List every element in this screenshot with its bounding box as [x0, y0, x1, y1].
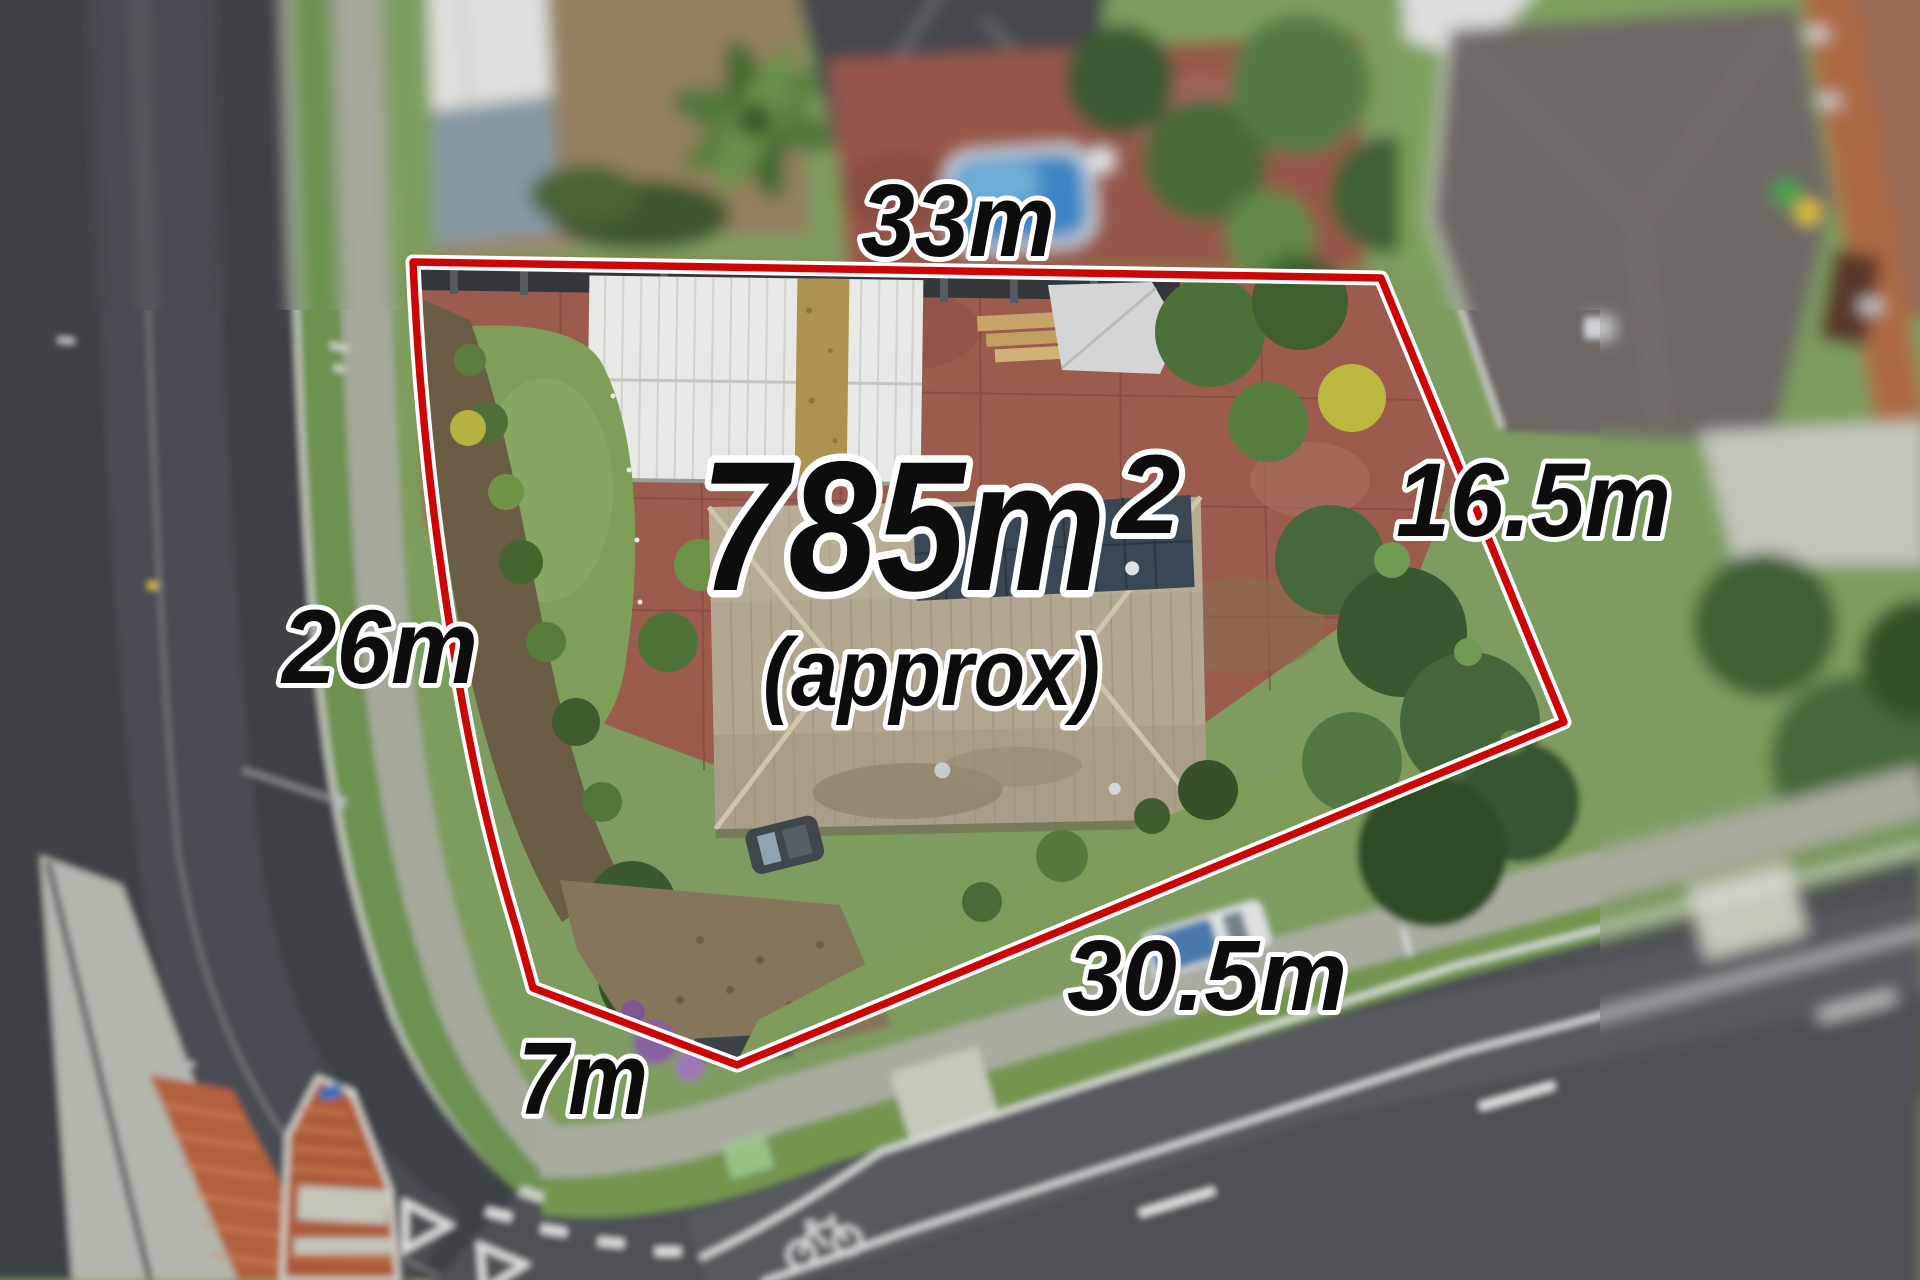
label-area-value: 785m — [700, 424, 1106, 630]
label-area-superscript: 2 — [1116, 432, 1180, 557]
label-left-boundary: 26m — [280, 589, 478, 706]
label-splay-boundary: 7m — [518, 1021, 648, 1136]
aerial-photo: 33m 16.5m 26m 30.5m 7m 785m 2 (approx) — [0, 0, 1920, 1280]
label-right-boundary: 16.5m — [1396, 442, 1671, 559]
label-street-boundary: 30.5m — [1067, 920, 1347, 1032]
label-area-qualifier: (approx) — [763, 619, 1100, 726]
aerial-photo-canvas: 33m 16.5m 26m 30.5m 7m 785m 2 (approx) — [0, 0, 1920, 1280]
label-top-boundary: 33m — [861, 163, 1055, 278]
